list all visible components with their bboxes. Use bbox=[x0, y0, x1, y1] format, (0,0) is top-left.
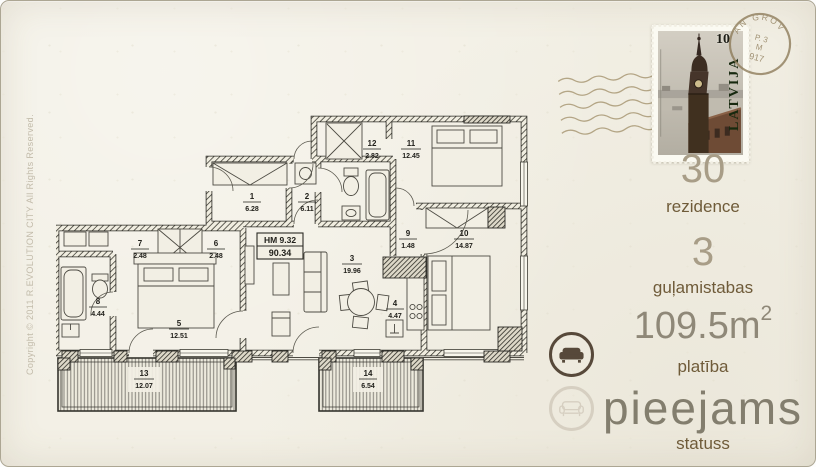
room-label-9: 91.48 bbox=[399, 229, 417, 250]
room-number: 6 bbox=[214, 239, 219, 248]
status-label: statuss bbox=[585, 435, 816, 452]
room-area: 2.48 bbox=[209, 253, 223, 260]
postmark-line3: 917 bbox=[748, 51, 765, 64]
room-number: 10 bbox=[460, 229, 469, 238]
room-area: 1.48 bbox=[401, 243, 415, 250]
room-number: 4 bbox=[393, 299, 398, 308]
room-area: 6.28 bbox=[245, 206, 259, 213]
plan-total-line2: 90.34 bbox=[269, 248, 292, 258]
room-label-6: 62.48 bbox=[207, 239, 225, 260]
room-area: 2.48 bbox=[133, 253, 147, 260]
room-number: 8 bbox=[96, 297, 101, 306]
stamp-perforation bbox=[650, 25, 654, 162]
room-label-12: 122.82 bbox=[363, 139, 381, 160]
area-exponent: 2 bbox=[761, 302, 773, 325]
floor-plan: HM 9.32 90.34 16.28 26.11 319.96 44.47 5… bbox=[56, 106, 546, 416]
room-area: 12.45 bbox=[402, 153, 420, 160]
room-number: 3 bbox=[350, 254, 355, 263]
room-area: 4.44 bbox=[91, 311, 105, 318]
room-label-7: 72.48 bbox=[131, 239, 149, 260]
cancellation-waves bbox=[558, 71, 658, 139]
copyright-text: Copyright © 2011 R.EVOLUTION CITY All Ri… bbox=[25, 114, 35, 375]
area-value: 109.5m2 bbox=[585, 307, 816, 345]
listing-card: Copyright © 2011 R.EVOLUTION CITY All Ri… bbox=[0, 0, 816, 467]
room-number: 13 bbox=[140, 369, 149, 378]
room-label-13: 1312.07 bbox=[128, 367, 160, 392]
residence-number: 30 bbox=[585, 149, 816, 189]
room-label-4: 44.47 bbox=[386, 299, 404, 320]
room-area: 14.87 bbox=[455, 243, 473, 250]
plan-total-box: HM 9.32 90.34 bbox=[257, 233, 303, 259]
bedrooms-label: guļamistabas bbox=[585, 279, 816, 296]
bedrooms-count: 3 bbox=[585, 232, 816, 272]
postmark-line2: M bbox=[755, 42, 764, 52]
area-label: platība bbox=[585, 358, 816, 375]
area-unit: m bbox=[729, 305, 761, 347]
room-area: 2.82 bbox=[365, 153, 379, 160]
status-badge-inactive[interactable] bbox=[549, 386, 594, 431]
room-number: 11 bbox=[407, 139, 416, 148]
room-area: 12.07 bbox=[135, 383, 153, 390]
room-number: 14 bbox=[364, 369, 373, 378]
room-label-14: 146.54 bbox=[353, 367, 383, 392]
plan-total-line1: HM 9.32 bbox=[264, 235, 296, 245]
room-label-1: 16.28 bbox=[243, 192, 261, 213]
residence-label: rezidence bbox=[585, 198, 816, 215]
room-area: 6.54 bbox=[361, 383, 375, 390]
room-number: 5 bbox=[177, 319, 182, 328]
area-number: 109.5 bbox=[634, 305, 729, 347]
room-label-3: 319.96 bbox=[342, 254, 362, 275]
room-number: 2 bbox=[305, 192, 310, 201]
status-badge-active[interactable] bbox=[549, 332, 594, 377]
status-value: pieejams bbox=[585, 385, 816, 431]
sofa-outline-icon bbox=[558, 399, 585, 418]
room-label-11: 1112.45 bbox=[401, 139, 421, 160]
sofa-icon bbox=[558, 345, 585, 364]
room-number: 12 bbox=[368, 139, 377, 148]
room-area: 6.11 bbox=[300, 206, 313, 213]
room-number: 1 bbox=[250, 192, 255, 201]
room-area: 12.51 bbox=[170, 333, 188, 340]
postmark: AN GROV P. 3 M 917 bbox=[722, 6, 798, 82]
room-number: 9 bbox=[406, 229, 411, 238]
room-area: 19.96 bbox=[343, 268, 361, 275]
room-number: 7 bbox=[138, 239, 143, 248]
room-area: 4.47 bbox=[388, 313, 402, 320]
